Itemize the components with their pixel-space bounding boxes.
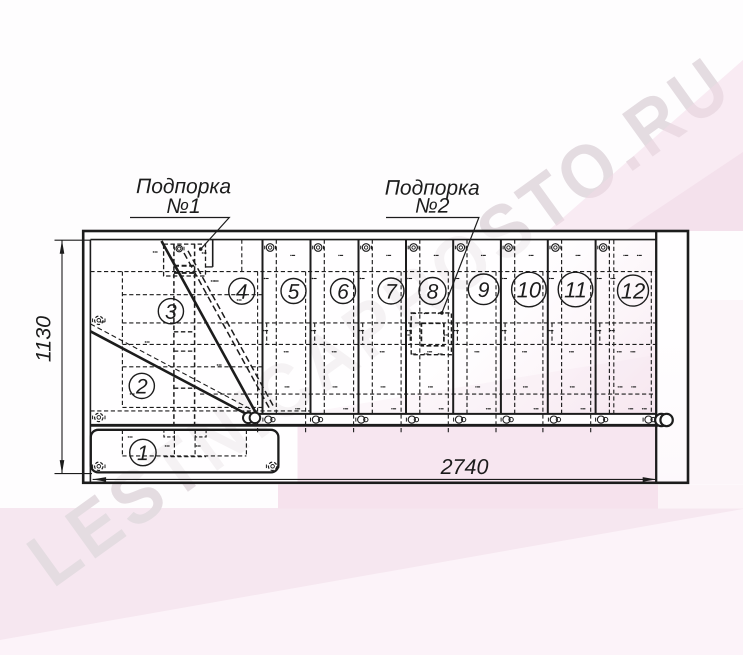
svg-text:№1: №1 bbox=[166, 195, 200, 218]
svg-text:7: 7 bbox=[385, 281, 398, 304]
svg-text:11: 11 bbox=[564, 277, 587, 302]
svg-text:2740: 2740 bbox=[440, 455, 489, 479]
svg-text:4: 4 bbox=[236, 281, 248, 304]
svg-text:2: 2 bbox=[135, 375, 148, 398]
svg-text:1: 1 bbox=[137, 442, 149, 465]
svg-text:6: 6 bbox=[337, 281, 349, 304]
svg-text:9: 9 bbox=[478, 279, 490, 302]
svg-text:10: 10 bbox=[517, 277, 542, 302]
svg-text:3: 3 bbox=[165, 301, 177, 324]
svg-text:№2: №2 bbox=[415, 195, 450, 218]
svg-text:8: 8 bbox=[427, 281, 439, 304]
svg-text:5: 5 bbox=[288, 281, 300, 304]
svg-text:12: 12 bbox=[621, 278, 645, 303]
svg-text:1130: 1130 bbox=[32, 316, 56, 362]
